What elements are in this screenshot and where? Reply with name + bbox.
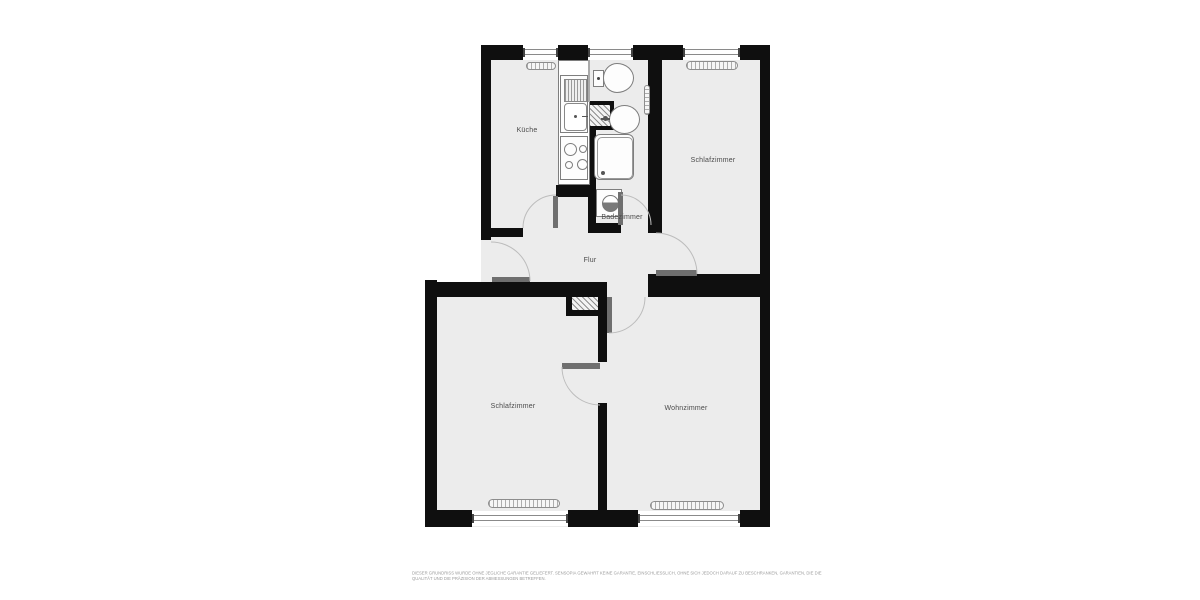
radiator	[686, 61, 738, 70]
radiator	[650, 501, 724, 510]
disclaimer-text: DIESER GRUNDRISS WURDE OHNE JEGLICHE GAR…	[412, 571, 822, 582]
window	[683, 45, 740, 60]
sink-drainer	[564, 79, 587, 102]
wall-segment	[568, 510, 638, 527]
window-glass	[588, 49, 633, 55]
room-label-kueche: Küche	[497, 127, 557, 134]
basin-faucet-knob	[603, 116, 608, 121]
wall-segment	[558, 45, 588, 60]
window-cap	[472, 514, 474, 523]
window-cap	[683, 48, 685, 57]
sink-faucet	[582, 116, 588, 117]
kitchen-door-leaf	[553, 196, 558, 228]
radiator	[526, 62, 556, 70]
sink-bowl	[564, 103, 587, 131]
wall-segment	[760, 45, 770, 527]
wall-segment	[425, 280, 437, 527]
wall-segment	[648, 274, 770, 297]
window-cap	[631, 48, 633, 57]
radiator	[488, 499, 560, 508]
window-cap	[523, 48, 525, 57]
window	[523, 45, 558, 60]
wall-segment	[598, 403, 607, 515]
stove-burner	[579, 145, 587, 153]
wall-segment	[425, 510, 472, 527]
stove-burner	[564, 143, 577, 156]
washing-machine-door	[602, 195, 619, 212]
window-glass	[638, 515, 740, 521]
sink-drain	[574, 115, 577, 118]
window-glass	[523, 49, 558, 55]
window-cap	[566, 514, 568, 523]
window-glass	[472, 515, 568, 521]
disclaimer-line-2: QUALITÄT UND DIE PRÄZISION DER ABMESSUNG…	[412, 577, 822, 583]
kitchen-sink-unit	[560, 75, 588, 133]
bedroom-bottom-door-leaf	[562, 363, 600, 369]
shower	[594, 134, 634, 180]
stove	[560, 136, 588, 180]
wall-segment	[556, 185, 590, 197]
window	[588, 45, 633, 60]
counter-bath-divider	[588, 60, 590, 102]
window-glass	[683, 49, 740, 55]
bathroom-basin	[609, 105, 640, 134]
room-label-flur: Flur	[560, 257, 620, 264]
duct-shaft	[566, 295, 601, 316]
toilet-flush	[597, 77, 600, 80]
window-cap	[738, 48, 740, 57]
stove-burner	[577, 159, 588, 170]
entrance-door-leaf	[492, 277, 530, 282]
livingroom-door-leaf	[607, 297, 612, 333]
radiator	[644, 85, 650, 115]
wall-segment	[481, 45, 491, 240]
window-cap	[738, 514, 740, 523]
room-label-schlafzimmer-bottom: Schlafzimmer	[463, 403, 563, 410]
window	[472, 511, 568, 526]
duct-hatch	[572, 297, 598, 310]
wall-segment	[740, 510, 770, 527]
bedroom-top-door-leaf	[656, 270, 697, 276]
floor-plan: Küche Schlafzimmer Badezimmer Flur Schla…	[0, 0, 1200, 600]
stove-burner	[565, 161, 573, 169]
window-cap	[638, 514, 640, 523]
wall-segment	[590, 223, 621, 233]
room-label-wohnzimmer: Wohnzimmer	[636, 405, 736, 412]
wall-segment	[633, 45, 683, 60]
shower-drain	[601, 171, 605, 175]
room-label-badezimmer: Badezimmer	[582, 214, 662, 221]
wall-segment	[481, 228, 523, 237]
wall-segment	[648, 60, 662, 233]
window-cap	[588, 48, 590, 57]
window-cap	[556, 48, 558, 57]
window	[638, 511, 740, 526]
room-label-schlafzimmer-top: Schlafzimmer	[663, 157, 763, 164]
